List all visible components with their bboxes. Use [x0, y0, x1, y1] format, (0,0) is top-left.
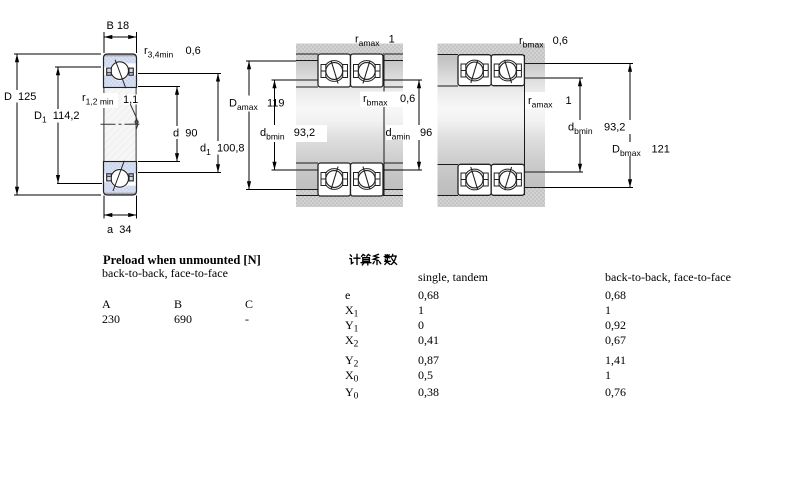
svg-text:0,68: 0,68 [418, 288, 439, 302]
svg-text:0,41: 0,41 [418, 333, 439, 347]
svg-text:X2: X2 [345, 333, 359, 350]
svg-text:a 34: a 34 [107, 224, 131, 236]
svg-text:1: 1 [605, 303, 611, 317]
svg-text:D 125: D 125 [4, 91, 36, 103]
svg-text:0,67: 0,67 [605, 333, 626, 347]
svg-text:X0: X0 [345, 368, 359, 385]
svg-text:d 90: d 90 [173, 128, 197, 140]
svg-text:0,68: 0,68 [605, 288, 626, 302]
svg-text:B: B [174, 297, 182, 311]
svg-text:0,92: 0,92 [605, 318, 626, 332]
svg-text:0,5: 0,5 [418, 368, 433, 382]
svg-text:C: C [245, 297, 253, 311]
svg-text:1,41: 1,41 [605, 353, 626, 367]
svg-text:A: A [102, 297, 111, 311]
svg-text:1: 1 [418, 303, 424, 317]
svg-text:230: 230 [102, 312, 120, 326]
svg-text:single, tandem: single, tandem [418, 270, 489, 284]
svg-text:0,38: 0,38 [418, 385, 439, 399]
svg-text:back-to-back, face-to-face: back-to-back, face-to-face [102, 266, 228, 280]
svg-text:Y0: Y0 [345, 385, 359, 402]
svg-text:1,1: 1,1 [123, 94, 138, 106]
svg-text:r3,4min0,6: r3,4min0,6 [144, 45, 201, 60]
svg-text:0,76: 0,76 [605, 385, 626, 399]
svg-text:e: e [345, 288, 350, 302]
svg-text:1: 1 [605, 368, 611, 382]
svg-text:0: 0 [418, 318, 424, 332]
svg-text:690: 690 [174, 312, 192, 326]
svg-text:Preload when unmounted [N]: Preload when unmounted [N] [103, 253, 261, 267]
svg-text:B 18: B 18 [107, 20, 130, 32]
svg-text:0,87: 0,87 [418, 353, 439, 367]
svg-text:-: - [245, 312, 249, 326]
svg-text:back-to-back, face-to-face: back-to-back, face-to-face [605, 270, 731, 284]
